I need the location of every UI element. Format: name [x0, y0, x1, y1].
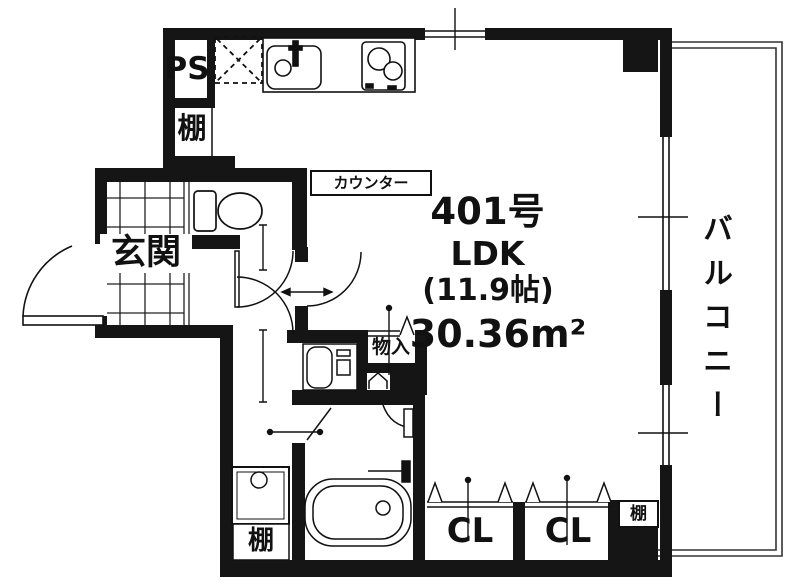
closet-right-label: CL [530, 514, 606, 548]
closet-left-label: CL [432, 514, 508, 548]
entrance-door-leaf [23, 316, 103, 325]
faucet [293, 41, 298, 66]
storage-label: 物入 [364, 338, 418, 357]
kitchen-shelf-label: 棚 [168, 114, 216, 143]
kitchen-fixtures [263, 38, 415, 92]
floor-plan: PS 棚 カウンター 玄関 401号 LDK (11.9帖) 30.36m² 物… [0, 0, 800, 582]
toilet [194, 191, 262, 231]
toilet-door-leaf [235, 251, 239, 307]
washer-drain [251, 472, 267, 488]
bath-shelf [404, 409, 413, 437]
unit-size-jo: (11.9帖) [392, 276, 584, 306]
balcony-label: バルコニー [693, 213, 735, 478]
shelf-right-base [618, 527, 658, 560]
bath-counter [402, 461, 410, 482]
washroom-shelf-label: 棚 [234, 528, 288, 554]
tub-drain [376, 501, 390, 515]
balcony-side-shelf-label: 棚 [618, 500, 659, 528]
entrance-label: 玄関 [100, 234, 192, 273]
faucet-handle [289, 46, 302, 50]
unit-layout: LDK [400, 237, 575, 270]
toilet-bowl [218, 193, 262, 229]
unit-area: 30.36m² [392, 315, 604, 353]
stove-burner-2 [384, 62, 402, 80]
sink-drain [275, 60, 291, 76]
pipe-space-label: PS [162, 54, 212, 85]
pillar [623, 40, 658, 72]
unit-number: 401号 [400, 193, 575, 230]
toilet-tank [194, 191, 216, 231]
vanity-basin [307, 347, 332, 388]
